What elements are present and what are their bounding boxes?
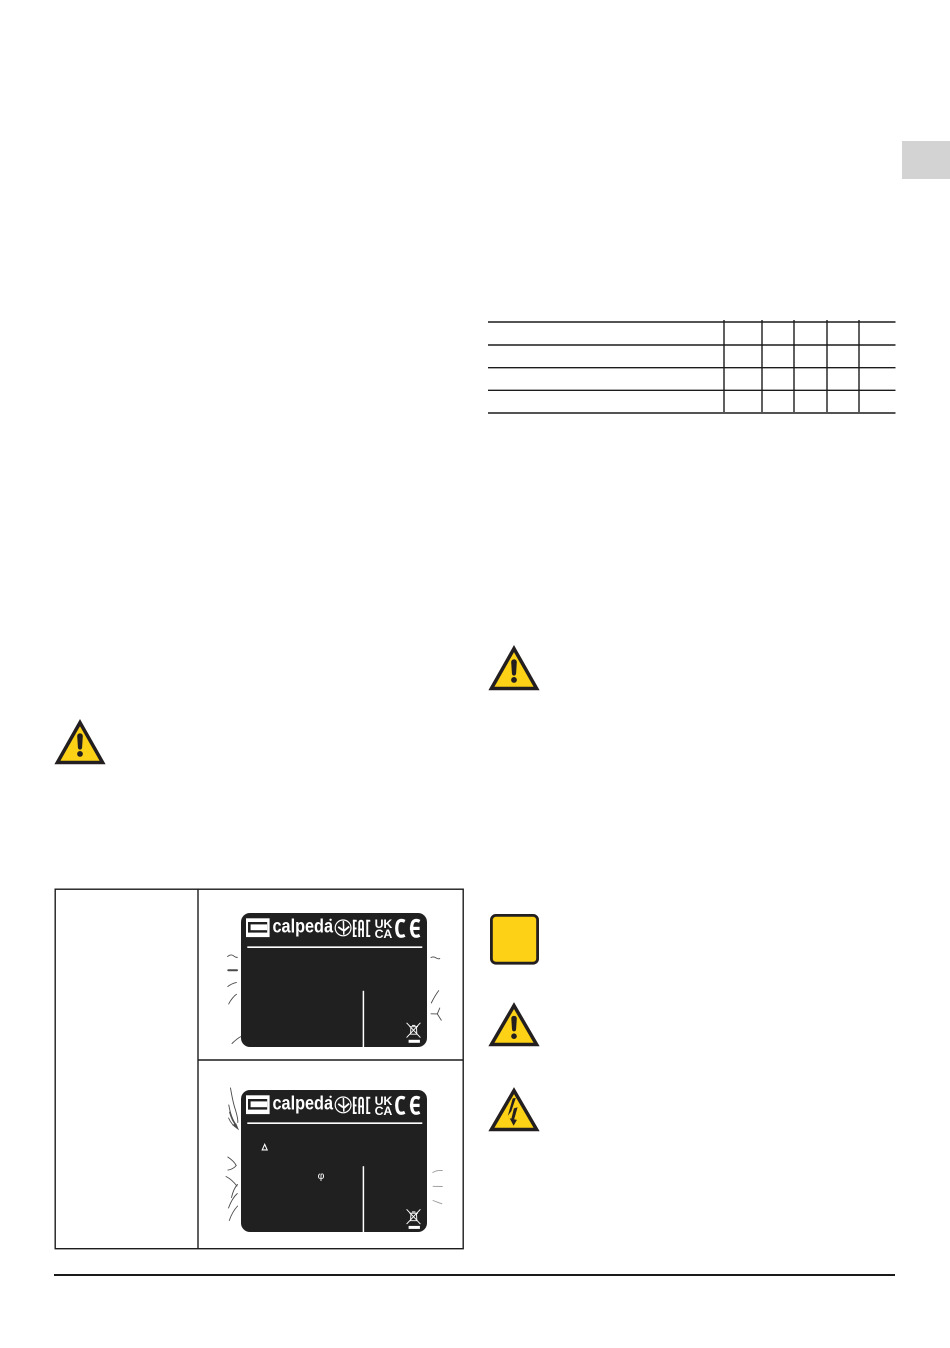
svg-text:calpeda: calpeda — [273, 916, 334, 938]
svg-text:CA: CA — [375, 927, 393, 941]
